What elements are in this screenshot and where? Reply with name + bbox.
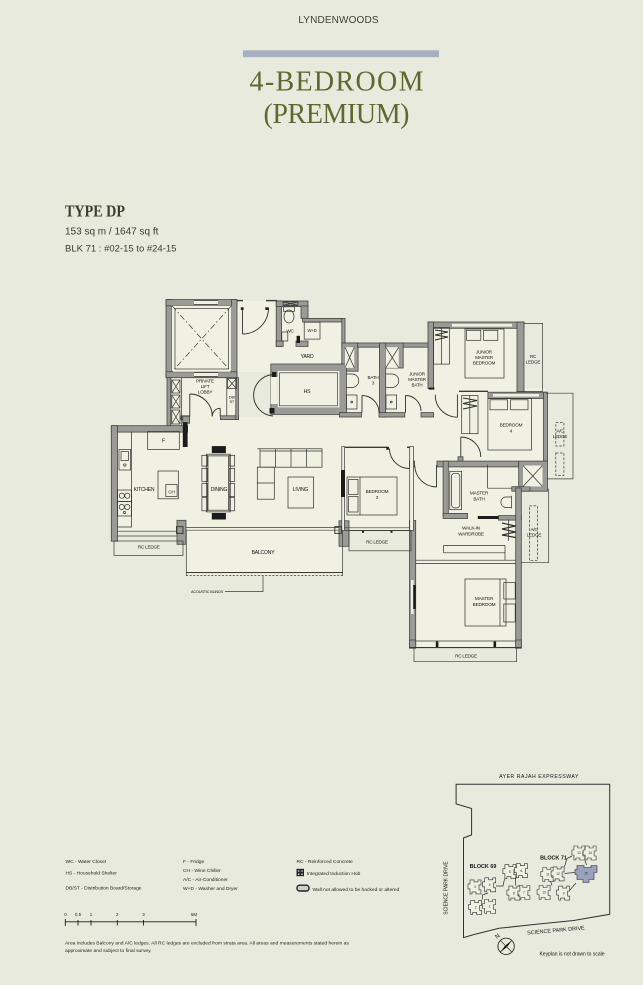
svg-text:BEDROOM: BEDROOM <box>473 602 496 607</box>
svg-text:LYNDENWOODS: LYNDENWOODS <box>298 15 379 26</box>
svg-text:BLOCK 69: BLOCK 69 <box>470 864 497 870</box>
svg-text:W+D - Washer and Dryer: W+D - Washer and Dryer <box>183 886 238 892</box>
svg-text:1: 1 <box>90 912 93 917</box>
svg-text:Keyplan is not drawn to scale: Keyplan is not drawn to scale <box>539 952 604 958</box>
svg-text:LEDGE: LEDGE <box>527 533 542 538</box>
svg-text:8: 8 <box>513 891 515 895</box>
svg-text:W+D: W+D <box>307 328 316 333</box>
svg-text:5: 5 <box>509 870 511 874</box>
svg-text:Integrated Induction Hob: Integrated Induction Hob <box>307 871 361 877</box>
svg-text:DINING: DINING <box>211 487 228 493</box>
svg-text:BATH: BATH <box>473 497 484 502</box>
svg-text:WARDROBE: WARDROBE <box>458 532 484 537</box>
svg-text:7: 7 <box>523 891 525 895</box>
svg-text:LEDGE: LEDGE <box>553 434 568 439</box>
svg-text:LOBBY: LOBBY <box>198 390 214 395</box>
svg-text:HS: HS <box>304 389 311 395</box>
svg-text:JUNIOR: JUNIOR <box>409 372 426 377</box>
svg-text:2: 2 <box>475 906 477 910</box>
svg-text:LIFT: LIFT <box>201 384 210 389</box>
svg-text:4: 4 <box>489 883 491 887</box>
svg-text:PRIVATE: PRIVATE <box>196 379 214 384</box>
svg-text:approximate and subject to fin: approximate and subject to final survey. <box>65 948 152 954</box>
svg-text:1: 1 <box>489 905 491 909</box>
svg-text:11: 11 <box>546 873 550 877</box>
svg-text:ST: ST <box>229 399 234 404</box>
svg-text:10: 10 <box>542 891 546 895</box>
svg-text:SCIENCE PARK DRIVE: SCIENCE PARK DRIVE <box>527 925 585 936</box>
svg-text:MASTER: MASTER <box>470 491 489 496</box>
svg-text:WALK-IN: WALK-IN <box>462 526 480 531</box>
svg-text:2: 2 <box>116 912 119 917</box>
svg-text:MASTER: MASTER <box>475 596 494 601</box>
svg-text:5M: 5M <box>191 912 198 917</box>
svg-text:CH: CH <box>168 490 174 495</box>
svg-text:BATH: BATH <box>411 383 422 388</box>
svg-text:14: 14 <box>588 851 592 855</box>
svg-text:LEDGE: LEDGE <box>526 360 541 365</box>
svg-text:RC: RC <box>530 354 537 359</box>
svg-text:WC - Water Closet: WC - Water Closet <box>66 859 107 865</box>
svg-text:HS - Household Shelter: HS - Household Shelter <box>66 871 118 877</box>
svg-text:3: 3 <box>474 885 476 889</box>
svg-text:JUNIOR: JUNIOR <box>476 350 493 355</box>
svg-text:6: 6 <box>521 869 523 873</box>
svg-text:0: 0 <box>64 912 67 917</box>
svg-text:3: 3 <box>142 912 145 917</box>
svg-text:CH - Wine Chiller: CH - Wine Chiller <box>183 868 221 874</box>
svg-text:MASTER: MASTER <box>475 355 494 360</box>
svg-text:A/C: A/C <box>557 429 565 434</box>
svg-text:0.5: 0.5 <box>75 912 82 917</box>
svg-text:13: 13 <box>577 851 581 855</box>
svg-text:WC: WC <box>286 329 294 334</box>
svg-text:BALCONY: BALCONY <box>252 550 276 556</box>
svg-text:BEDROOM: BEDROOM <box>500 423 523 428</box>
svg-text:Wall not allowed to be hacked: Wall not allowed to be hacked or altered <box>313 887 400 893</box>
svg-text:LIVING: LIVING <box>293 487 309 493</box>
svg-text:KITCHEN: KITCHEN <box>134 487 155 493</box>
svg-text:BEDROOM: BEDROOM <box>366 489 389 494</box>
svg-text:BLK 71 : #02-15 to #24-15: BLK 71 : #02-15 to #24-15 <box>65 244 176 255</box>
svg-text:BLOCK 71: BLOCK 71 <box>540 856 567 862</box>
svg-text:RC LEDGE: RC LEDGE <box>455 654 477 659</box>
svg-text:RC LEDGE: RC LEDGE <box>366 540 388 545</box>
svg-text:RC LEDGE: RC LEDGE <box>138 545 160 550</box>
svg-text:(PREMIUM): (PREMIUM) <box>264 99 410 130</box>
svg-text:12: 12 <box>556 872 560 876</box>
svg-text:MASTER: MASTER <box>408 377 427 382</box>
svg-text:RC - Reinforced Concrete: RC - Reinforced Concrete <box>297 859 354 865</box>
svg-text:AYER RAJAH EXPRESSWAY: AYER RAJAH EXPRESSWAY <box>499 774 579 780</box>
svg-text:N: N <box>494 933 501 940</box>
svg-text:A/C - Air-Conditioner: A/C - Air-Conditioner <box>183 877 228 883</box>
svg-text:15: 15 <box>584 872 588 876</box>
svg-text:4-BEDROOM: 4-BEDROOM <box>250 67 424 98</box>
svg-text:A/C: A/C <box>531 527 539 532</box>
svg-text:Area includes Balcony and A/C: Area includes Balcony and A/C ledges. Al… <box>65 941 349 947</box>
svg-text:153 sq m / 1647 sq ft: 153 sq m / 1647 sq ft <box>65 227 159 238</box>
svg-text:TYPE DP: TYPE DP <box>65 202 125 221</box>
svg-text:F - Fridge: F - Fridge <box>183 859 204 865</box>
svg-text:BEDROOM: BEDROOM <box>473 361 496 366</box>
svg-text:9: 9 <box>563 891 565 895</box>
svg-text:DB/ST - Distribution Board/Sto: DB/ST - Distribution Board/Storage <box>66 886 142 892</box>
svg-text:BATH: BATH <box>367 375 378 380</box>
svg-text:SCIENCE PARK DRIVE: SCIENCE PARK DRIVE <box>444 861 450 915</box>
svg-text:ACOUSTIC BLINDS: ACOUSTIC BLINDS <box>191 589 224 594</box>
svg-text:YARD: YARD <box>301 354 314 360</box>
svg-text:F: F <box>162 439 165 445</box>
